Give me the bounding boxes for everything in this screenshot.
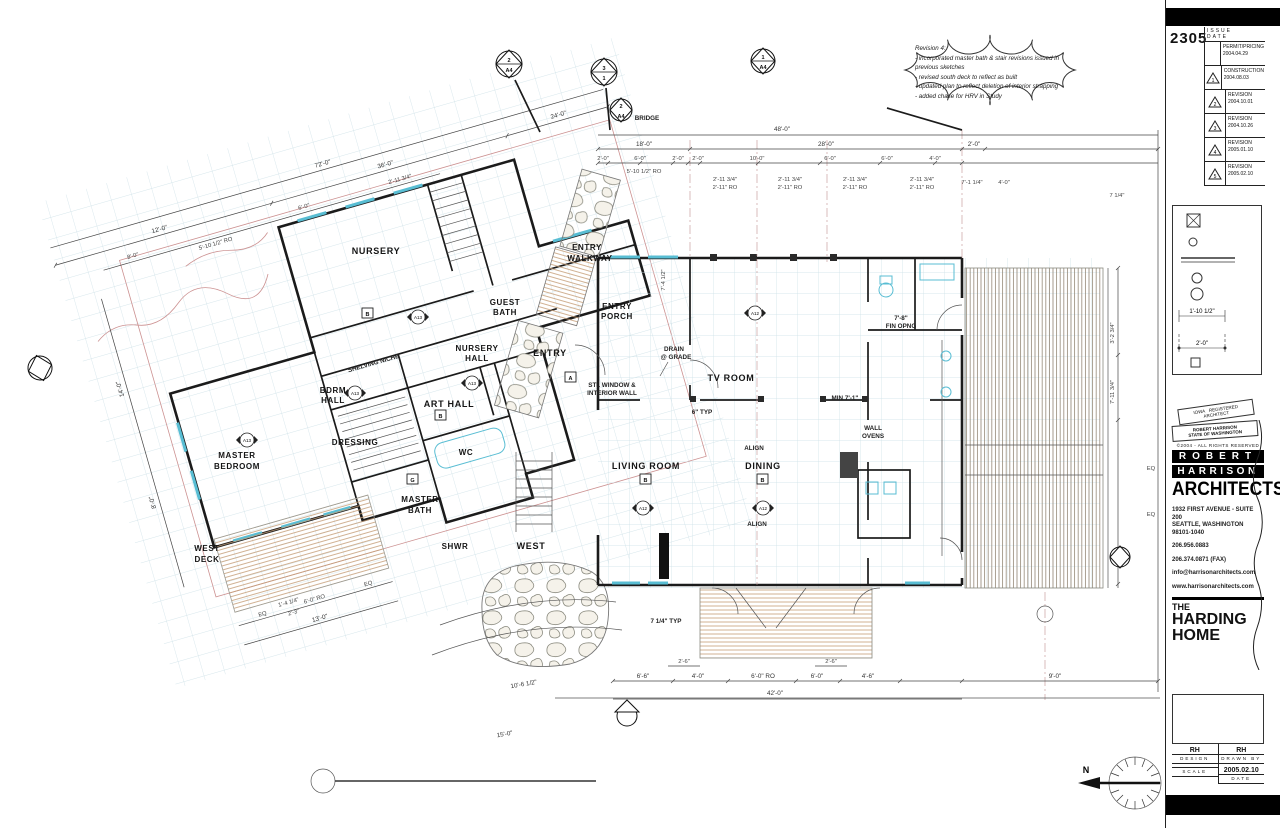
dim-label: 18'-0": [636, 141, 652, 148]
revision-issue: REVISION: [1228, 140, 1252, 146]
firm-name-robert: ROBERT: [1172, 450, 1264, 463]
svg-text:A4: A4: [617, 114, 625, 120]
sheet-info-box: [1172, 694, 1264, 744]
email: info@harrisonarchitects.com: [1172, 570, 1264, 578]
section-marker-icon: [615, 700, 639, 726]
date-label: DATE: [1219, 775, 1265, 784]
dim-label: EQ: [1147, 466, 1156, 472]
revision-issue: REVISION: [1228, 164, 1252, 170]
dim-label: 7'-11 3/4": [1110, 380, 1116, 404]
dim-label: 2'-11" RO: [778, 185, 803, 191]
revision-date: 2004.04.29: [1223, 51, 1248, 57]
dim-label: 9'-0": [1049, 673, 1062, 680]
drawn-label: DRAWN BY: [1219, 755, 1265, 764]
drawn-value: RH: [1219, 744, 1265, 755]
dim-label: 2'-11 3/4": [910, 177, 934, 183]
svg-text:2: 2: [1214, 102, 1217, 108]
room-label-dining: DINING: [745, 461, 781, 471]
keynote-box: B: [640, 474, 651, 484]
note-stl-window: STL WINDOW &: [588, 382, 636, 389]
dim-label: 15'-0": [496, 730, 513, 740]
dim-label: 4'-0": [998, 180, 1010, 186]
note-typ-6: 6" TYP: [692, 409, 712, 416]
address-line: 98101-1040: [1172, 530, 1264, 538]
svg-text:3: 3: [1214, 126, 1217, 132]
room-label-entry-porch: ENTRY: [602, 302, 632, 311]
keynote-box: B: [362, 308, 373, 318]
drawing-sheet: 72'-0" 12'-0" 36'-0" 24'-0" 8'-0" 5'-10 …: [0, 0, 1280, 828]
symbol-legend: 1'-10 1/2" 2'-0": [1172, 205, 1262, 375]
dim-label: 4'-0": [929, 156, 941, 162]
revision-triangle-icon: 5: [1208, 168, 1222, 180]
title-block-fields: RH DESIGN SCALE RH DRAWN BY 2005.02.10 D…: [1172, 694, 1264, 784]
architect-stamp: IOWA REGISTERED ARCHITECT ROBERT HARRISO…: [1172, 404, 1264, 644]
room-label-shwr: SHWR: [442, 542, 469, 551]
dim-label: 6'-0": [634, 156, 646, 162]
dim-label: EQ: [1147, 512, 1156, 518]
project-title-harding: HARDING: [1172, 612, 1264, 628]
svg-text:A4: A4: [759, 65, 767, 71]
title-block-header-bar: [1166, 8, 1280, 26]
revision-triangle-icon: 3: [1208, 120, 1222, 132]
svg-text:A13: A13: [468, 381, 477, 386]
legend-dim: 1'-10 1/2": [1189, 309, 1214, 315]
revision-note-line: - updated plan to reflect deletion of in…: [915, 82, 1067, 92]
scale-label: SCALE: [1172, 768, 1218, 777]
dim-label: 2'-11" RO: [713, 185, 738, 191]
revision-triangle-icon: 1: [1206, 72, 1220, 84]
svg-text:1: 1: [1211, 78, 1214, 84]
revision-row: 3 REVISION2004.10.26: [1205, 114, 1265, 138]
dim-label: 7'-4 1/2": [661, 269, 667, 290]
dim-label: 7'-1 1/4": [961, 180, 982, 186]
svg-text:A12: A12: [751, 311, 760, 316]
project-title: THE HARDING HOME: [1172, 597, 1264, 644]
room-label-entry-walkway: ENTRY: [572, 243, 602, 252]
note-fin-opng: 7'-8": [894, 315, 908, 322]
dim-label: 6'-6": [637, 673, 650, 680]
firm-address: 1932 FIRST AVENUE - SUITE 200 SEATTLE, W…: [1172, 507, 1264, 591]
section-marker-icon: 1 A4: [751, 48, 775, 74]
svg-text:3: 3: [602, 66, 605, 72]
room-label-wc: WC: [459, 448, 474, 457]
south-dimensions: 6'-6" 4'-0" 6'-0" RO 6'-0" 4'-6" 9'-0" 4…: [611, 659, 1160, 699]
revision-date: 2005.02.10: [1228, 171, 1253, 177]
dim-label: 10'-0": [750, 156, 765, 162]
dim-label: 6'-0": [824, 156, 836, 162]
revision-row: 1 CONSTRUCTION2004.08.03: [1205, 66, 1265, 90]
sheet-number-bar: [1166, 795, 1280, 815]
floor-plan-canvas: 72'-0" 12'-0" 36'-0" 24'-0" 8'-0" 5'-10 …: [0, 0, 1280, 828]
north-label: N: [1083, 765, 1090, 775]
room-label-living-room: LIVING ROOM: [612, 461, 680, 471]
dim-label: 48'-0": [774, 126, 790, 133]
note-stl-window: INTERIOR WALL: [587, 390, 637, 397]
svg-text:2: 2: [619, 104, 622, 110]
revision-note-line: - revised south deck to reflect as built: [915, 73, 1067, 83]
dim-label: 6'-0": [881, 156, 893, 162]
revision-row: 4 REVISION2005.01.10: [1205, 138, 1265, 162]
room-label-art-hall: ART HALL: [424, 399, 475, 409]
project-number: 2305: [1170, 30, 1207, 47]
room-label-entry-walkway: WALKWAY: [567, 254, 612, 263]
svg-text:B: B: [644, 478, 648, 484]
note-fin-opng: FIN OPNG: [886, 323, 917, 330]
dim-label: 2'-11 3/4": [778, 177, 802, 183]
design-label: DESIGN: [1172, 755, 1218, 764]
note-wall-ovens: OVENS: [862, 433, 884, 440]
website: www.harrisonarchitects.com: [1172, 584, 1264, 592]
copyright: ©2004 - ALL RIGHTS RESERVED: [1172, 443, 1264, 448]
room-label-guest-bath: GUEST: [490, 298, 521, 307]
room-label-tv-room: TV ROOM: [708, 373, 755, 383]
revision-table: ISSUE DATE PERMIT/PRICING2004.04.29 1 CO…: [1204, 27, 1265, 186]
svg-text:A12: A12: [759, 506, 768, 511]
revision-date: 2005.01.10: [1228, 147, 1253, 153]
room-label-nursery-hall: HALL: [465, 354, 489, 363]
room-label-entry-porch: PORCH: [601, 312, 633, 321]
dim-label: 2'-11" RO: [910, 185, 935, 191]
dim-label: 4'-6": [862, 673, 875, 680]
svg-text:1: 1: [602, 76, 605, 82]
dim-label: 2'-6": [825, 659, 837, 665]
room-label-west: WEST: [517, 541, 546, 551]
revision-note-line: - incorporated master bath & stair revis…: [915, 54, 1067, 73]
revision-issue: REVISION: [1228, 92, 1252, 98]
dim-label: 2'-11" RO: [843, 185, 868, 191]
address-line: 1932 FIRST AVENUE - SUITE 200: [1172, 507, 1264, 522]
east-wing-geometry: [575, 254, 1108, 658]
revision-row: PERMIT/PRICING2004.04.29: [1205, 42, 1265, 66]
project-title-home: HOME: [1172, 628, 1264, 644]
svg-text:2: 2: [507, 58, 510, 64]
revision-col-date: DATE: [1207, 34, 1228, 40]
dim-label: 2'-0": [672, 156, 684, 162]
svg-text:B: B: [761, 478, 765, 484]
keynote-box: B: [435, 410, 446, 420]
dim-label: 42'-0": [767, 690, 783, 697]
dim-label: 7 1/4": [1110, 193, 1125, 199]
revision-triangle-icon: 4: [1208, 144, 1222, 156]
revision-note-line: - added chase for HRV in Study: [915, 92, 1067, 102]
design-value: RH: [1172, 744, 1218, 755]
dim-label: 6'-0" RO: [751, 673, 775, 680]
room-label-west-deck: WEST: [194, 544, 220, 553]
dim-label: 5'-10 1/2" RO: [627, 169, 662, 175]
note-min-clearance: MIN 7'-1": [832, 395, 859, 402]
note-bridge: BRIDGE: [635, 115, 660, 122]
title-block: 2305 ISSUE DATE PERMIT/PRICING2004.04.29…: [1165, 0, 1267, 828]
note-align: ALIGN: [747, 521, 767, 528]
room-label-bdrm-hall: HALL: [321, 396, 345, 405]
svg-text:5: 5: [1214, 174, 1217, 180]
firm-name-architects: ARCHITECTS: [1172, 479, 1257, 501]
room-label-entry: ENTRY: [533, 348, 567, 358]
north-arrow: N: [1078, 757, 1161, 809]
svg-text:B: B: [439, 414, 443, 420]
decorative-squiggle: [1252, 420, 1266, 670]
svg-text:A: A: [569, 376, 573, 382]
revision-date: 2004.10.01: [1228, 99, 1253, 105]
room-label-master-bedroom: BEDROOM: [214, 462, 260, 471]
note-align: ALIGN: [744, 445, 764, 452]
keynote-box: B: [757, 474, 768, 484]
detail-reference: [311, 769, 596, 793]
section-marker-icon: [1110, 546, 1130, 568]
section-marker-icon: [25, 352, 55, 384]
legend-dim: 2'-0": [1196, 341, 1208, 347]
room-label-bdrm-hall: BDRM: [320, 386, 346, 395]
room-label-west-deck: DECK: [194, 555, 219, 564]
dim-label: 28'-0": [818, 141, 834, 148]
revision-note: Revision 4: - incorporated master bath &…: [915, 44, 1067, 101]
dim-label: 2'-0": [692, 156, 704, 162]
dim-label: 2'-11 3/4": [843, 177, 867, 183]
room-label-guest-bath: BATH: [493, 308, 517, 317]
revision-note-title: Revision 4:: [915, 44, 1067, 54]
stamp-architect: ARCHITECT: [1203, 410, 1229, 419]
revision-triangle-icon: 2: [1208, 96, 1222, 108]
svg-text:4: 4: [1214, 150, 1217, 156]
note-wall-ovens: WALL: [864, 425, 882, 432]
dim-label: 4'-0": [692, 673, 705, 680]
dim-label: 2'-11 3/4": [713, 177, 737, 183]
svg-text:A12: A12: [639, 506, 648, 511]
room-label-nursery-hall: NURSERY: [455, 344, 498, 353]
west-patio-stones: [482, 562, 609, 666]
date-value: 2005.02.10: [1219, 764, 1265, 775]
svg-text:1: 1: [761, 55, 764, 61]
room-label-master-bath: MASTER: [401, 495, 438, 504]
firm-name-harrison: HARRISON: [1172, 465, 1264, 478]
phone: 206.956.0883: [1172, 543, 1264, 551]
dim-label: 2'-0": [968, 141, 981, 148]
dim-label: 2'-0": [597, 156, 609, 162]
revision-issue: REVISION: [1228, 116, 1252, 122]
revision-row: 5 REVISION2005.02.10: [1205, 162, 1265, 186]
revision-date: 2004.08.03: [1224, 75, 1249, 81]
right-dimensions: 3'-2 3/4" 7'-11 3/4" EQ EQ: [1110, 130, 1158, 692]
note-drain: @ GRADE: [661, 354, 692, 361]
svg-text:A13: A13: [414, 315, 423, 320]
svg-text:A4: A4: [505, 68, 513, 74]
revision-issue: PERMIT/PRICING: [1223, 44, 1264, 50]
keynote-box: G: [407, 474, 418, 484]
room-label-nursery: NURSERY: [352, 246, 401, 256]
note-drain: DRAIN: [664, 346, 684, 353]
room-label-dressing: DRESSING: [332, 438, 379, 447]
keynote-box: A: [565, 372, 576, 382]
svg-text:A13: A13: [243, 438, 252, 443]
svg-text:G: G: [410, 478, 414, 484]
note-typ-714: 7 1/4" TYP: [651, 618, 682, 625]
svg-text:B: B: [366, 312, 370, 318]
dim-label: 3'-2 3/4": [1110, 322, 1116, 343]
svg-text:A13: A13: [351, 391, 360, 396]
revision-date: 2004.10.26: [1228, 123, 1253, 129]
room-label-master-bath: BATH: [408, 506, 432, 515]
room-label-master-bedroom: MASTER: [218, 451, 255, 460]
dim-label: 6'-0": [811, 673, 824, 680]
address-line: SEATTLE, WASHINGTON: [1172, 522, 1264, 530]
fax: 206.374.0871 (FAX): [1172, 557, 1264, 565]
dim-label: 10'-6 1/2": [510, 679, 537, 691]
revision-issue: CONSTRUCTION: [1224, 68, 1264, 74]
revision-row: 2 REVISION2004.10.01: [1205, 90, 1265, 114]
dim-label: 2'-6": [678, 659, 690, 665]
